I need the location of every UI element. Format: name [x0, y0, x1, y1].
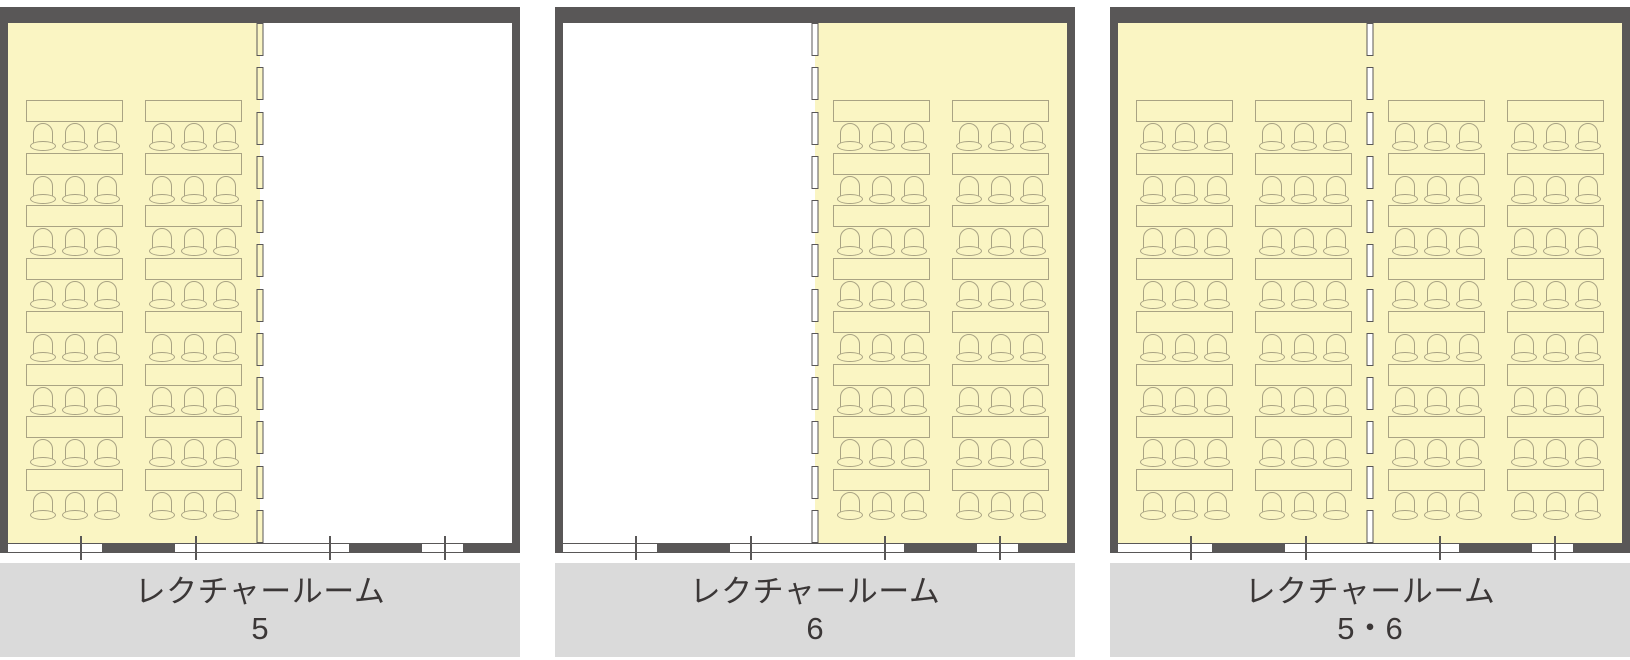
- partition-panel: [1367, 156, 1374, 189]
- desk-unit: [145, 311, 242, 363]
- chair-row: [1507, 438, 1604, 468]
- room-label-bar: レクチャールーム 5・6: [1110, 563, 1630, 657]
- desk-unit: [145, 416, 242, 468]
- chair: [1020, 438, 1046, 467]
- chair: [1575, 175, 1601, 204]
- seating-area: [833, 100, 1049, 521]
- chair-row: [1388, 491, 1485, 521]
- chair-seat: [1204, 246, 1230, 256]
- room-name: レクチャールーム: [690, 574, 941, 610]
- desk: [952, 364, 1049, 386]
- chair-seat: [94, 299, 120, 309]
- desk: [26, 469, 123, 491]
- chair-row: [952, 280, 1049, 310]
- chair: [1323, 122, 1349, 151]
- chair-row: [145, 122, 242, 152]
- chair-seat: [30, 299, 56, 309]
- chair-row: [952, 175, 1049, 205]
- chair-seat: [62, 405, 88, 415]
- chair: [1204, 227, 1230, 256]
- window-mullion: [195, 536, 197, 560]
- room-interior: [563, 23, 1067, 543]
- chair-seat: [1259, 510, 1285, 520]
- desk: [1255, 416, 1352, 438]
- chair-row: [1255, 491, 1352, 521]
- chair: [956, 491, 982, 520]
- chair: [1575, 333, 1601, 362]
- chair-seat: [1511, 457, 1537, 467]
- desk: [833, 153, 930, 175]
- chair-seat: [1424, 246, 1450, 256]
- chair: [1172, 175, 1198, 204]
- chair: [837, 386, 863, 415]
- chair-seat: [1259, 405, 1285, 415]
- chair-seat: [1323, 457, 1349, 467]
- chair-seat: [1172, 510, 1198, 520]
- chair: [901, 491, 927, 520]
- chair-row: [833, 491, 930, 521]
- partition-panel: [257, 377, 264, 410]
- partition-panel: [257, 466, 264, 499]
- desk: [952, 416, 1049, 438]
- chair-seat: [1543, 246, 1569, 256]
- chair-seat: [1392, 299, 1418, 309]
- desk: [1507, 153, 1604, 175]
- desk-unit: [1255, 416, 1352, 468]
- window-mullion: [750, 536, 752, 560]
- desk: [833, 100, 930, 122]
- chair: [62, 333, 88, 362]
- desk: [1388, 469, 1485, 491]
- chair-seat: [1323, 510, 1349, 520]
- chair-row: [1507, 280, 1604, 310]
- chair-row: [833, 386, 930, 416]
- desk: [1136, 153, 1233, 175]
- chair: [1172, 122, 1198, 151]
- chair: [837, 227, 863, 256]
- chair: [1424, 122, 1450, 151]
- chair-row: [1507, 333, 1604, 363]
- wall-segment: [1573, 543, 1622, 553]
- chair: [1172, 280, 1198, 309]
- chair-row: [26, 122, 123, 152]
- chair-row: [1255, 386, 1352, 416]
- desk: [1507, 364, 1604, 386]
- partition-panel: [1367, 510, 1374, 543]
- chair-seat: [30, 457, 56, 467]
- chair-seat: [1172, 246, 1198, 256]
- chair-seat: [1575, 457, 1601, 467]
- chair-seat: [149, 405, 175, 415]
- chair-seat: [869, 194, 895, 204]
- chair-seat: [1204, 510, 1230, 520]
- chair-seat: [1259, 299, 1285, 309]
- window-mullion: [1439, 536, 1441, 560]
- partition-panel: [257, 421, 264, 454]
- chair-seat: [1511, 352, 1537, 362]
- chair: [1204, 333, 1230, 362]
- chair-row: [1136, 227, 1233, 257]
- chair-seat: [1140, 510, 1166, 520]
- chair: [94, 438, 120, 467]
- chair-seat: [1140, 246, 1166, 256]
- chair-seat: [988, 405, 1014, 415]
- chair-row: [833, 280, 930, 310]
- partition-panel: [1367, 67, 1374, 100]
- chair-seat: [1392, 457, 1418, 467]
- chair: [988, 227, 1014, 256]
- desk-unit: [1255, 153, 1352, 205]
- desk-unit: [26, 258, 123, 310]
- chair-seat: [62, 352, 88, 362]
- chair: [837, 175, 863, 204]
- chair-row: [1388, 333, 1485, 363]
- chair-seat: [901, 299, 927, 309]
- chair-seat: [1424, 457, 1450, 467]
- desk: [952, 311, 1049, 333]
- chair-seat: [62, 457, 88, 467]
- desk-unit: [1507, 258, 1604, 310]
- partition-panel: [257, 23, 264, 56]
- chair: [1259, 438, 1285, 467]
- chair: [1020, 333, 1046, 362]
- chair-row: [1255, 438, 1352, 468]
- chair: [181, 227, 207, 256]
- desk-unit: [1507, 311, 1604, 363]
- chair-seat: [181, 405, 207, 415]
- desk: [833, 205, 930, 227]
- chair-seat: [901, 352, 927, 362]
- chair: [1204, 280, 1230, 309]
- chair-seat: [1291, 194, 1317, 204]
- chair-seat: [837, 352, 863, 362]
- desk-unit: [1136, 416, 1233, 468]
- chair-row: [26, 280, 123, 310]
- room-label-bar: レクチャールーム 5: [0, 563, 520, 657]
- chair: [1323, 438, 1349, 467]
- desk-unit: [833, 311, 930, 363]
- desk-unit: [145, 258, 242, 310]
- chair: [956, 438, 982, 467]
- chair-seat: [1140, 299, 1166, 309]
- chair: [213, 280, 239, 309]
- partition-panel: [1367, 466, 1374, 499]
- chair-seat: [1456, 405, 1482, 415]
- chair-seat: [1172, 194, 1198, 204]
- chair: [1511, 175, 1537, 204]
- desk-unit: [26, 364, 123, 416]
- chair-seat: [1020, 457, 1046, 467]
- chair: [30, 175, 56, 204]
- chair: [1020, 491, 1046, 520]
- chair: [1291, 122, 1317, 151]
- partition-panel: [1367, 421, 1374, 454]
- desk: [1388, 416, 1485, 438]
- chair-seat: [1543, 457, 1569, 467]
- chair: [869, 386, 895, 415]
- chair-seat: [1259, 194, 1285, 204]
- chair-seat: [869, 510, 895, 520]
- chair-seat: [1172, 299, 1198, 309]
- desk: [1136, 364, 1233, 386]
- chair: [1140, 333, 1166, 362]
- desk-unit: [1136, 364, 1233, 416]
- chair-seat: [181, 299, 207, 309]
- chair-seat: [1323, 246, 1349, 256]
- floor-plan: [1110, 7, 1630, 553]
- chair-row: [145, 438, 242, 468]
- window-mullion: [999, 536, 1001, 560]
- chair-seat: [1392, 405, 1418, 415]
- chair: [1392, 175, 1418, 204]
- chair: [30, 491, 56, 520]
- chair: [1511, 491, 1537, 520]
- chair-seat: [1575, 352, 1601, 362]
- chair: [1575, 386, 1601, 415]
- chair-row: [26, 333, 123, 363]
- chair: [1204, 491, 1230, 520]
- desk: [145, 311, 242, 333]
- chair: [869, 122, 895, 151]
- desk: [145, 100, 242, 122]
- chair: [956, 227, 982, 256]
- chair-row: [1255, 227, 1352, 257]
- desk-unit: [952, 205, 1049, 257]
- chair: [869, 175, 895, 204]
- chair: [869, 491, 895, 520]
- chair-seat: [837, 194, 863, 204]
- desk-unit: [1136, 153, 1233, 205]
- desk: [26, 258, 123, 280]
- window-mullion: [1554, 536, 1556, 560]
- chair: [1575, 491, 1601, 520]
- chair: [1511, 438, 1537, 467]
- room-name: レクチャールーム: [1245, 574, 1496, 610]
- chair: [1259, 280, 1285, 309]
- chair-row: [1388, 438, 1485, 468]
- chair: [988, 175, 1014, 204]
- wall-segment: [102, 543, 175, 553]
- chair: [213, 122, 239, 151]
- room-name: レクチャールーム: [135, 574, 386, 610]
- chair: [1140, 386, 1166, 415]
- chair-row: [26, 438, 123, 468]
- wall-segment: [1459, 543, 1532, 553]
- chair-seat: [1020, 246, 1046, 256]
- partition-panel: [812, 289, 819, 322]
- chair: [1140, 227, 1166, 256]
- desk-unit: [1255, 311, 1352, 363]
- chair: [901, 386, 927, 415]
- chair: [956, 280, 982, 309]
- partition-panel: [1367, 333, 1374, 366]
- chair-seat: [956, 141, 982, 151]
- chair-seat: [869, 299, 895, 309]
- chair: [30, 333, 56, 362]
- chair-row: [833, 438, 930, 468]
- desk-unit: [952, 100, 1049, 152]
- chair: [837, 122, 863, 151]
- chair-seat: [1424, 510, 1450, 520]
- desk: [1507, 258, 1604, 280]
- chair-row: [952, 333, 1049, 363]
- chair-seat: [1456, 457, 1482, 467]
- desk-unit: [1255, 205, 1352, 257]
- chair: [94, 491, 120, 520]
- chair: [62, 122, 88, 151]
- desk-column: [26, 100, 123, 521]
- chair-seat: [1204, 299, 1230, 309]
- chair: [1424, 280, 1450, 309]
- chair: [1543, 175, 1569, 204]
- chair: [956, 333, 982, 362]
- desk-unit: [1136, 100, 1233, 152]
- chair-seat: [956, 352, 982, 362]
- chair-seat: [149, 510, 175, 520]
- chair: [1456, 280, 1482, 309]
- desk: [1388, 364, 1485, 386]
- window-mullion: [80, 536, 82, 560]
- desk: [1255, 469, 1352, 491]
- desk: [1255, 205, 1352, 227]
- chair-seat: [1204, 457, 1230, 467]
- desk: [145, 469, 242, 491]
- desk: [833, 364, 930, 386]
- chair: [1456, 175, 1482, 204]
- desk-column: [952, 100, 1049, 521]
- chair-row: [833, 227, 930, 257]
- desk-unit: [1507, 205, 1604, 257]
- chair: [901, 280, 927, 309]
- window-mullion: [1190, 536, 1192, 560]
- chair-seat: [1020, 299, 1046, 309]
- chair-seat: [1543, 141, 1569, 151]
- chair-seat: [94, 194, 120, 204]
- chair-seat: [1424, 141, 1450, 151]
- chair: [181, 280, 207, 309]
- desk-column: [145, 100, 242, 521]
- chair: [1172, 386, 1198, 415]
- desk-unit: [952, 153, 1049, 205]
- chair-seat: [213, 299, 239, 309]
- chair-seat: [1020, 405, 1046, 415]
- chair: [94, 386, 120, 415]
- desk-unit: [1388, 416, 1485, 468]
- desk: [145, 258, 242, 280]
- chair-row: [1388, 280, 1485, 310]
- window-wall: [1118, 543, 1622, 553]
- chair-seat: [181, 246, 207, 256]
- chair: [94, 227, 120, 256]
- chair: [1511, 386, 1537, 415]
- chair-seat: [988, 510, 1014, 520]
- chair-row: [1507, 491, 1604, 521]
- desk: [1507, 100, 1604, 122]
- desk-unit: [952, 469, 1049, 521]
- chair-seat: [94, 405, 120, 415]
- chair-seat: [837, 405, 863, 415]
- partition-panel: [812, 466, 819, 499]
- chair: [901, 333, 927, 362]
- chair: [181, 122, 207, 151]
- chair-seat: [1392, 141, 1418, 151]
- chair-seat: [901, 141, 927, 151]
- desk-unit: [833, 153, 930, 205]
- partition-panel: [812, 333, 819, 366]
- chair: [1424, 175, 1450, 204]
- chair: [181, 491, 207, 520]
- chair-row: [1507, 386, 1604, 416]
- room-half-right: [815, 23, 1067, 543]
- chair-seat: [1323, 405, 1349, 415]
- chair: [30, 438, 56, 467]
- desk-unit: [1507, 364, 1604, 416]
- chair: [1020, 227, 1046, 256]
- partition-panel: [1367, 112, 1374, 145]
- desk-unit: [26, 416, 123, 468]
- chair-seat: [1456, 194, 1482, 204]
- chair: [1424, 438, 1450, 467]
- chair: [1172, 438, 1198, 467]
- chair-seat: [181, 510, 207, 520]
- desk: [145, 364, 242, 386]
- partition-panel: [257, 156, 264, 189]
- chair-seat: [837, 299, 863, 309]
- chair: [1511, 280, 1537, 309]
- chair: [1392, 227, 1418, 256]
- chair: [149, 122, 175, 151]
- partition-panel: [812, 510, 819, 543]
- chair-seat: [213, 246, 239, 256]
- chair: [1140, 491, 1166, 520]
- chair-seat: [869, 141, 895, 151]
- chair-seat: [1392, 246, 1418, 256]
- desk-unit: [833, 100, 930, 152]
- chair-seat: [988, 194, 1014, 204]
- room-half-left: [563, 23, 815, 543]
- chair: [181, 386, 207, 415]
- chair-seat: [1323, 352, 1349, 362]
- desk-unit: [1136, 258, 1233, 310]
- desk-unit: [952, 311, 1049, 363]
- chair: [988, 122, 1014, 151]
- floor-plan: [0, 7, 520, 553]
- chair-row: [26, 175, 123, 205]
- movable-partition: [812, 23, 819, 543]
- chair: [1392, 386, 1418, 415]
- chair-seat: [1543, 194, 1569, 204]
- lecture-room-floorplans: レクチャールーム 5 レクチャールーム 6 レクチャ: [0, 0, 1630, 660]
- chair-row: [26, 491, 123, 521]
- partition-panel: [1367, 289, 1374, 322]
- desk-unit: [26, 469, 123, 521]
- chair-row: [1255, 175, 1352, 205]
- chair: [837, 333, 863, 362]
- partition-panel: [812, 244, 819, 277]
- chair: [869, 280, 895, 309]
- desk-unit: [1255, 100, 1352, 152]
- chair-seat: [1140, 194, 1166, 204]
- chair: [1543, 333, 1569, 362]
- chair: [1259, 175, 1285, 204]
- room-half-right: [1370, 23, 1622, 543]
- wall-segment: [349, 543, 422, 553]
- chair: [1575, 280, 1601, 309]
- chair-seat: [1291, 405, 1317, 415]
- chair-row: [1388, 227, 1485, 257]
- chair-seat: [1323, 299, 1349, 309]
- chair-row: [145, 491, 242, 521]
